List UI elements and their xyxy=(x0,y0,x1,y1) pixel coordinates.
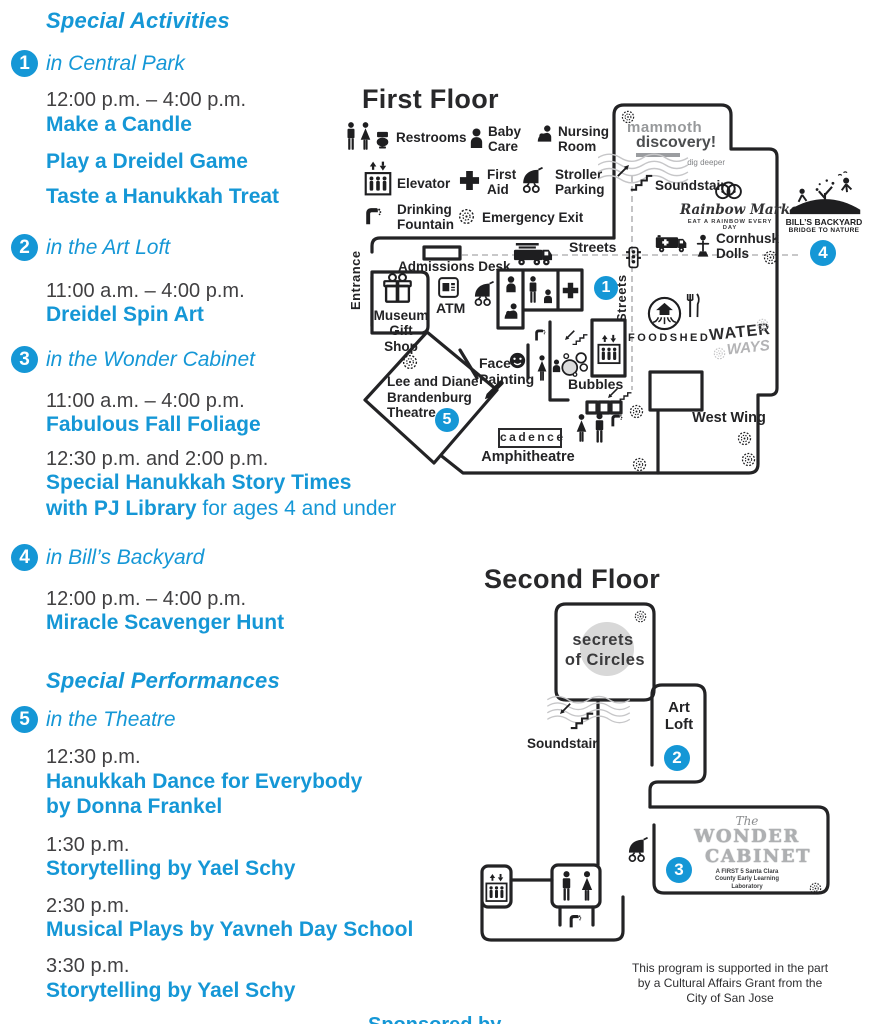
drinking-fountain-icon xyxy=(609,411,623,427)
activity-2-location: in the Art Loft xyxy=(46,236,170,259)
baby-icon xyxy=(542,289,554,304)
activity-3-badge: 3 xyxy=(11,346,38,373)
first-aid-icon xyxy=(459,170,480,191)
performance-title: by Donna Frankel xyxy=(46,794,222,819)
rainbow-market-icon xyxy=(714,181,743,202)
wonder-logo-line1: WONDER xyxy=(687,827,807,847)
legend-label-drinking-fountain: Drinking Fountain xyxy=(397,202,463,233)
nursing-room-icon xyxy=(535,125,554,144)
stroller-parking-icon xyxy=(516,167,543,194)
woman-icon xyxy=(580,871,594,902)
man-icon xyxy=(527,276,539,304)
stairs-icon xyxy=(570,707,594,730)
emergency-exit-icon xyxy=(458,208,475,225)
performance-title: Storytelling by Yael Schy xyxy=(46,856,295,881)
cornhusk-doll-icon xyxy=(695,234,711,258)
ambulance-icon xyxy=(655,233,688,253)
performance-title: Hanukkah Dance for Everybody xyxy=(46,769,362,794)
stroller-icon xyxy=(622,837,648,863)
wonder-logo-line2: CABINET xyxy=(705,847,807,867)
legend-label-emergency-exit: Emergency Exit xyxy=(482,210,583,225)
activity-title: Taste a Hanukkah Treat xyxy=(46,184,279,209)
streets-horizontal-label: Streets xyxy=(569,240,616,256)
woman-icon xyxy=(575,414,588,443)
map-badge-2: 2 xyxy=(664,745,690,771)
drinking-fountain-icon xyxy=(363,203,382,225)
wonder-cabinet-logo: The WONDER CABINET A FIRST 5 Santa Clara… xyxy=(687,815,807,891)
drinking-fountain-icon xyxy=(533,326,546,341)
baby-care-icon xyxy=(468,128,485,149)
time-label: 1:30 p.m. xyxy=(46,834,129,857)
activity-4-location: in Bill’s Backyard xyxy=(46,546,204,569)
map-badge-5: 5 xyxy=(435,408,459,432)
wonder-logo-tagline: A FIRST 5 Santa Clara County Early Learn… xyxy=(707,869,787,892)
stroller-icon xyxy=(468,281,494,307)
arrow-icon xyxy=(608,388,618,398)
rainbow-market-name: Rainbow Market xyxy=(680,202,780,218)
man-icon xyxy=(593,413,606,444)
map-badge-1: 1 xyxy=(594,276,618,300)
soundstair-label-2f: Soundstair xyxy=(527,736,597,751)
first-floor-heading: First Floor xyxy=(362,86,499,113)
emergency-exit-icon xyxy=(629,404,644,419)
time-label: 12:00 p.m. – 4:00 p.m. xyxy=(46,89,246,112)
legend-label-baby-care: Baby Care xyxy=(488,124,530,155)
rainbow-market-tagline: EAT A RAINBOW EVERY DAY xyxy=(680,219,780,231)
rainbow-market-logo: Rainbow Market EAT A RAINBOW EVERY DAY xyxy=(680,202,780,231)
time-label: 12:30 p.m. xyxy=(46,746,141,769)
cadence-logo: cadence xyxy=(498,428,562,448)
elevator-icon xyxy=(597,327,621,371)
activity-4-badge: 4 xyxy=(11,544,38,571)
secrets-logo-line2: of Circles xyxy=(545,651,665,670)
bills-backyard-logo: BILL’S BACKYARD BRIDGE TO NATURE xyxy=(782,217,866,234)
map-badge-4: 4 xyxy=(810,240,836,266)
baby-icon xyxy=(504,276,518,293)
program-flyer-page: Special Activities 1 in Central Park 12:… xyxy=(0,0,869,1024)
performances-heading: Special Performances xyxy=(46,670,280,692)
activity-2-badge: 2 xyxy=(11,234,38,261)
mammoth-logo-line1: mammoth xyxy=(627,120,731,135)
legend-label-elevator: Elevator xyxy=(397,176,450,191)
emergency-exit-icon xyxy=(621,110,635,124)
footer-credit-line2: by a Cultural Affairs Grant from the xyxy=(612,976,848,991)
gift-box-icon xyxy=(382,273,413,304)
foodshed-logo-icon xyxy=(647,296,682,331)
atm-label: ATM xyxy=(436,301,465,317)
entrance-label: Entrance xyxy=(348,240,363,310)
time-label: 2:30 p.m. xyxy=(46,895,129,918)
atm-icon xyxy=(438,277,459,298)
mammoth-logo-line2: discovery! xyxy=(636,135,731,152)
activity-title-bold: with PJ Library xyxy=(46,497,197,520)
arrow-icon xyxy=(565,330,575,340)
activity-title: Miracle Scavenger Hunt xyxy=(46,610,284,635)
activity-title: Make a Candle xyxy=(46,112,192,137)
art-loft-label: Art Loft xyxy=(655,700,703,734)
nursing-icon xyxy=(502,303,520,321)
stairs-icon xyxy=(616,389,632,403)
elevator-icon xyxy=(364,160,392,196)
west-wing-label: West Wing xyxy=(673,410,785,426)
museum-gift-shop-label: Museum Gift Shop xyxy=(373,308,429,354)
emergency-exit-icon xyxy=(737,431,752,446)
toilet-icon xyxy=(375,131,390,149)
fork-knife-icon xyxy=(685,293,701,318)
activity-title: Dreidel Spin Art xyxy=(46,302,204,327)
time-label: 12:30 p.m. and 2:00 p.m. xyxy=(46,448,268,471)
activity-5-badge: 5 xyxy=(11,706,38,733)
emergency-exit-icon xyxy=(402,354,418,370)
activities-heading: Special Activities xyxy=(46,10,230,32)
legend-label-restrooms: Restrooms xyxy=(396,130,467,145)
bills-backyard-name: BILL’S BACKYARD xyxy=(782,217,866,227)
activity-title: Fabulous Fall Foliage xyxy=(46,412,261,437)
emergency-exit-icon xyxy=(713,347,726,360)
emergency-exit-icon xyxy=(632,457,647,472)
admissions-desk-label: Admissions Desk xyxy=(398,259,511,274)
fire-truck-icon xyxy=(513,241,553,266)
time-label: 12:00 p.m. – 4:00 p.m. xyxy=(46,588,246,611)
footer-credit-line1: This program is supported in the part xyxy=(612,961,848,976)
time-label: 3:30 p.m. xyxy=(46,955,129,978)
second-floor-heading: Second Floor xyxy=(484,566,660,593)
amphitheatre-label: Amphitheatre xyxy=(473,449,583,465)
arrow-icon xyxy=(617,165,629,177)
drinking-fountain-icon xyxy=(567,911,582,928)
first-aid-icon xyxy=(562,282,579,299)
activity-title-regular: for ages 4 and under xyxy=(202,497,396,520)
man-icon xyxy=(345,122,357,151)
activity-title: Play a Dreidel Game xyxy=(46,149,248,174)
performance-title: Storytelling by Yael Schy xyxy=(46,978,295,1003)
emergency-exit-icon xyxy=(763,250,778,265)
elevator-icon xyxy=(485,870,508,905)
emergency-exit-icon xyxy=(634,610,647,623)
activity-title: Special Hanukkah Story Times xyxy=(46,470,351,495)
activity-1-badge: 1 xyxy=(11,50,38,77)
face-painting-icon xyxy=(509,352,526,369)
activity-3-location: in the Wonder Cabinet xyxy=(46,348,255,371)
performance-title: Musical Plays by Yavneh Day School xyxy=(46,917,413,942)
bills-backyard-tagline: BRIDGE TO NATURE xyxy=(782,227,866,234)
footer-credit-line3: City of San Jose xyxy=(612,991,848,1006)
activity-5-location: in the Theatre xyxy=(46,708,176,731)
activity-title: with PJ Library for ages 4 and under xyxy=(46,496,396,521)
time-label: 11:00 a.m. – 4:00 p.m. xyxy=(46,390,245,413)
arrow-icon xyxy=(560,703,571,714)
emergency-exit-icon xyxy=(809,882,822,895)
woman-icon xyxy=(359,122,372,151)
bubbles-icon xyxy=(560,350,590,378)
emergency-exit-icon xyxy=(756,318,769,331)
bills-backyard-icon xyxy=(788,170,862,216)
secrets-logo-line1: secrets xyxy=(543,631,663,650)
activity-1-location: in Central Park xyxy=(46,52,185,75)
sponsored-by-partial-text: Sponsored by xyxy=(368,1014,501,1024)
legend-label-nursing-room: Nursing Room xyxy=(558,124,614,155)
man-icon xyxy=(560,871,573,902)
foodshed-label: FOODSHED xyxy=(628,332,704,344)
time-label: 11:00 a.m. – 4:00 p.m. xyxy=(46,280,245,303)
emergency-exit-icon xyxy=(741,452,756,467)
stairs-icon xyxy=(630,169,653,192)
